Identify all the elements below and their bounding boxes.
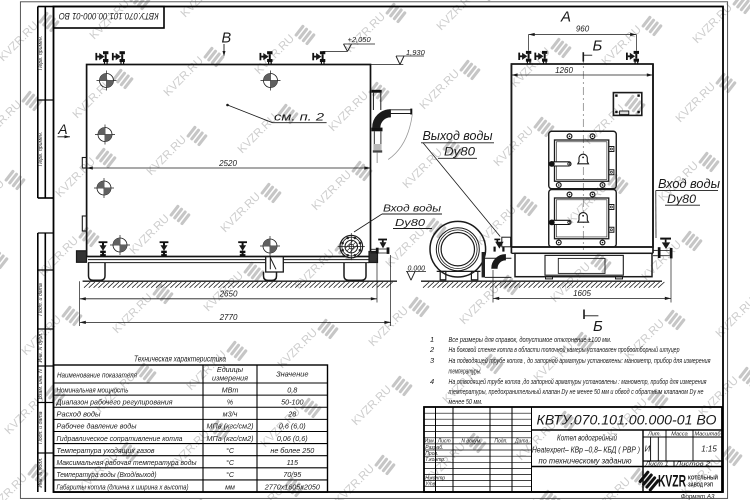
svg-text:Взам. инв. N: Взам. инв. N [38,369,44,399]
svg-text:Масштаб: Масштаб [695,431,722,437]
svg-text:температуры.: температуры. [449,366,482,375]
svg-text:На подводящей трубе котла , д: На подводящей трубе котла , до запорной … [449,356,711,365]
svg-text:0,06 (0,6): 0,06 (0,6) [277,434,308,443]
svg-text:Dy80: Dy80 [395,217,425,229]
svg-text:измерения: измерения [212,373,248,382]
svg-text:Инв. N подл.: Инв. N подл. [38,457,44,487]
svg-text:На боковой стенке котла в обла: На боковой стенке котла в области топочн… [449,345,680,354]
svg-text:менее 50 мм.: менее 50 мм. [449,397,483,406]
svg-text:И: И [645,444,651,453]
svg-text:МПа (кгс/см2): МПа (кгс/см2) [207,434,254,443]
svg-text:Значение: Значение [276,370,308,379]
svg-text:1260: 1260 [555,66,573,75]
svg-text:по техническому заданию: по техническому заданию [539,455,632,465]
svg-text:1,930: 1,930 [406,48,426,57]
svg-text:Все размеры для справок, допус: Все размеры для справок, допустимое откл… [449,335,612,344]
svg-text:1: 1 [430,335,434,344]
svg-text:мм: мм [225,482,235,491]
svg-text:°С: °С [226,458,235,467]
svg-text:Утв.: Утв. [425,482,436,488]
svg-text:Рабочее давление воды: Рабочее давление воды [57,422,138,431]
svg-text:Разраб.: Разраб. [425,445,443,451]
svg-text:2770: 2770 [219,313,238,322]
svg-text:1605: 1605 [573,289,591,298]
svg-text:Подп. и дата: Подп. и дата [38,411,44,444]
svg-text:960: 960 [576,24,590,33]
svg-text:Пров.: Пров. [425,451,438,457]
svg-text:Котел водогрейный: Котел водогрейный [557,433,617,443]
svg-text:Габариты котла (длинна х ширин: Габариты котла (длинна х ширина х высота… [57,482,189,491]
svg-text:Номинальная мощность: Номинальная мощность [57,385,129,394]
svg-text:м3/ч: м3/ч [223,410,238,419]
svg-text:2: 2 [429,345,434,354]
svg-text:115: 115 [287,458,299,467]
svg-text:ЗАВОД РЭП: ЗАВОД РЭП [688,483,713,489]
svg-text:Н.контр: Н.контр [425,476,445,482]
svg-text:температуры, предохранительный: температуры, предохранительный клапан Dy… [449,387,704,396]
svg-text:В: В [222,31,232,47]
svg-text:Диапазон рабочего регулировани: Диапазон рабочего регулирования [56,397,173,406]
svg-text:70/95: 70/95 [283,470,302,479]
svg-text:КВТУ.070.101.00.000-01 ВО: КВТУ.070.101.00.000-01 ВО [537,412,717,428]
svg-text:Наименование показателя: Наименование показателя [57,371,137,380]
svg-text:Формат А3: Формат А3 [681,494,715,500]
svg-text:Лист: Лист [437,439,451,445]
svg-text:Дата: Дата [514,439,528,445]
svg-text:Dy80: Dy80 [667,192,696,206]
svg-text:2770х1605х2050: 2770х1605х2050 [264,482,320,491]
svg-text:А: А [560,9,571,26]
svg-text:%: % [227,397,234,406]
svg-text:МВт: МВт [222,385,239,394]
svg-text:КОТЕЛЬНЫЙ: КОТЕЛЬНЫЙ [688,474,718,482]
svg-text:Инв. N дубл.: Инв. N дубл. [38,332,44,362]
svg-text:Вход воды: Вход воды [658,176,720,191]
svg-text:Температура уходящих газов: Температура уходящих газов [57,446,155,455]
svg-text:Heatexpert– КВр –0,8– КБД ( РВ: Heatexpert– КВр –0,8– КБД ( РВР ) [532,445,640,455]
svg-text:KVZR: KVZR [658,473,686,491]
svg-text:МПа (кгс/см2): МПа (кгс/см2) [207,422,254,431]
svg-text:Расход воды: Расход воды [57,410,102,419]
svg-text:4: 4 [430,377,434,386]
svg-text:Т.контр.: Т.контр. [425,457,445,463]
svg-text:°С: °С [226,470,235,479]
svg-text:Максимальная рабочая температу: Максимальная рабочая температура воды [57,458,198,467]
svg-text:0,8: 0,8 [287,385,297,394]
svg-text:А: А [57,121,67,137]
svg-text:50-100: 50-100 [281,397,303,406]
svg-text:Техническая характеристика: Техническая характеристика [134,355,227,364]
svg-text:Лит.: Лит. [647,431,661,437]
svg-text:2520: 2520 [218,159,237,168]
svg-text:Подп. и дата: Подп. и дата [38,283,44,316]
svg-text:Перв. примен.: Перв. примен. [38,132,44,166]
svg-text:Выход воды: Выход воды [423,128,493,143]
svg-text:0,6 (6,0): 0,6 (6,0) [279,422,306,431]
svg-text:Гидравлическое сопративление к: Гидравлическое сопративление котла [57,434,183,443]
svg-text:Б: Б [593,318,603,335]
svg-text:не более 250: не более 250 [270,446,314,455]
svg-text:Вход воды: Вход воды [383,203,441,215]
svg-text:Лист 1: Лист 1 [644,462,668,468]
svg-text:КВТУ.070.101.00.000-01 ВО: КВТУ.070.101.00.000-01 ВО [59,11,159,21]
svg-text:+2,050: +2,050 [348,35,372,44]
svg-text:Перв. примен.: Перв. примен. [38,36,44,70]
svg-text:Листов 2: Листов 2 [675,462,712,468]
svg-text:Б: Б [593,38,603,55]
svg-text:Температура воды (Вход/выход): Температура воды (Вход/выход) [57,470,157,479]
svg-text:Подп.: Подп. [494,439,507,445]
svg-text:Масса: Масса [671,431,688,437]
svg-text:1:15: 1:15 [701,444,717,453]
svg-text:Изм.: Изм. [424,439,435,445]
svg-text:На отводящей трубе котла ,до з: На отводящей трубе котла ,до запорной ар… [449,377,707,386]
svg-text:°С: °С [226,446,235,455]
svg-text:N докум.: N докум. [461,439,481,445]
svg-text:28: 28 [287,410,296,419]
svg-text:2650: 2650 [219,289,238,298]
svg-text:Dy80: Dy80 [444,144,475,158]
svg-text:см. п. 2: см. п. 2 [274,112,324,124]
